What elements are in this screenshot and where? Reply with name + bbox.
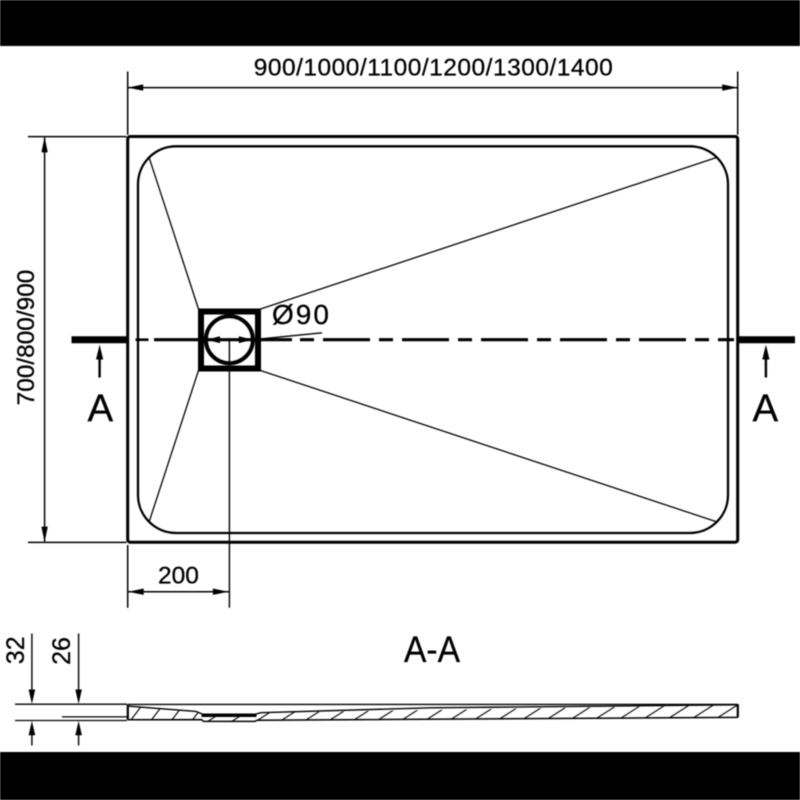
svg-text:900/1000/1100/1200/1300/1400: 900/1000/1100/1200/1300/1400 <box>254 55 614 82</box>
svg-text:26: 26 <box>48 637 76 665</box>
svg-text:32: 32 <box>2 636 30 664</box>
svg-text:200: 200 <box>158 563 199 590</box>
svg-text:700/800/900: 700/800/900 <box>13 270 40 406</box>
svg-text:A: A <box>752 388 778 431</box>
svg-text:Ø90: Ø90 <box>272 299 331 330</box>
svg-text:A-A: A-A <box>404 628 460 670</box>
svg-text:A: A <box>88 388 114 431</box>
